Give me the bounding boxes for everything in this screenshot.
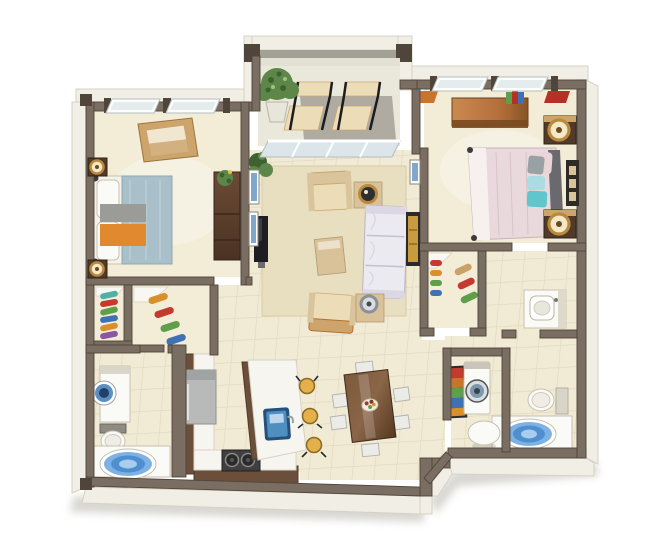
- dining-table: [344, 370, 396, 443]
- wall-laundry-west: [443, 348, 451, 420]
- wall-bath-west: [502, 348, 510, 452]
- wall-master-west: [412, 89, 420, 154]
- window-cap: [551, 76, 558, 91]
- bedroom2-open-chest: [138, 118, 198, 162]
- bar-stool-1: [300, 379, 315, 394]
- armchair-south: [307, 292, 358, 333]
- wall-bedroom2-south-b: [246, 277, 252, 285]
- window-cap: [223, 98, 230, 113]
- bar-stool-3: [307, 438, 322, 453]
- wall-bath-mid-b: [502, 330, 516, 338]
- armchair-north: [307, 171, 353, 211]
- outer-face-step: [420, 496, 432, 514]
- wall-bath2-east: [172, 345, 186, 477]
- bedroom2-bed: [92, 175, 173, 266]
- wall-closet-south-b: [470, 328, 486, 336]
- wall-bath-mid-a: [540, 330, 577, 338]
- bedroom2-window-1: [106, 99, 160, 113]
- corner-cap: [80, 478, 92, 490]
- floor-plan-illustration: [0, 0, 650, 551]
- outer-face-left: [72, 102, 86, 493]
- master-wall-art: [566, 160, 579, 206]
- table-lamp-gold: [360, 186, 377, 203]
- bath2-tub: [94, 446, 170, 479]
- bedroom2-nightstand-south: [88, 260, 107, 278]
- wall-bedroom2-right: [241, 102, 249, 285]
- bedroom2-wardrobe: [214, 170, 240, 260]
- wall-closet-divider-b: [210, 285, 218, 355]
- wall-closet-east: [478, 251, 486, 336]
- wall-laundry-top: [443, 348, 510, 356]
- master-window-2: [492, 77, 548, 91]
- bedroom2-window-2: [166, 99, 220, 113]
- side-table-with-lamp: [356, 294, 384, 322]
- dresser-books: [506, 92, 512, 104]
- balcony-inner-face: [258, 58, 400, 66]
- master-nightstand-north: [544, 116, 576, 144]
- wall-master-south-b: [548, 243, 586, 251]
- wall-right: [577, 80, 586, 458]
- wall-living-east: [420, 148, 428, 336]
- kitchen-island: [242, 360, 306, 460]
- floor-plan-canvas: [0, 0, 650, 551]
- master-window-1: [432, 77, 488, 91]
- end-table-with-lamp: [354, 182, 382, 208]
- laundry-closet: [446, 362, 490, 418]
- wall-closet-divider-a: [124, 285, 132, 347]
- outer-face-bath-bottom: [448, 458, 594, 476]
- wall-balcony-left: [252, 56, 260, 111]
- master-nightstand-south: [544, 210, 576, 238]
- entry-round-table: [468, 421, 500, 445]
- balcony-parapet: [244, 36, 412, 50]
- bar-stool-2: [303, 409, 318, 424]
- refrigerator: [184, 370, 216, 424]
- master-vanity: [524, 290, 566, 328]
- wall-balcony-master-link: [400, 80, 417, 89]
- bedroom2-nightstand-north: [88, 158, 107, 176]
- front-load-washer: [464, 362, 490, 414]
- living-wall-art-gold: [406, 212, 420, 266]
- sliding-glass-door: [260, 141, 400, 157]
- sofa: [362, 205, 407, 298]
- corner-cap: [80, 94, 92, 106]
- outer-face-right: [586, 80, 598, 464]
- balcony-parapet-cap: [244, 50, 412, 59]
- bedroom2-wall-art-1: [249, 170, 259, 204]
- living-wall-art-small: [410, 160, 420, 184]
- bedroom2-wall-art-2: [249, 212, 258, 246]
- accent-mat-red: [544, 91, 570, 103]
- wall-master-south-a: [412, 243, 512, 251]
- wall-closet-south-a: [420, 328, 434, 336]
- wall-bath2-top-a: [86, 345, 140, 353]
- wall-bath-bottom: [448, 448, 586, 458]
- coffee-table: [314, 237, 346, 276]
